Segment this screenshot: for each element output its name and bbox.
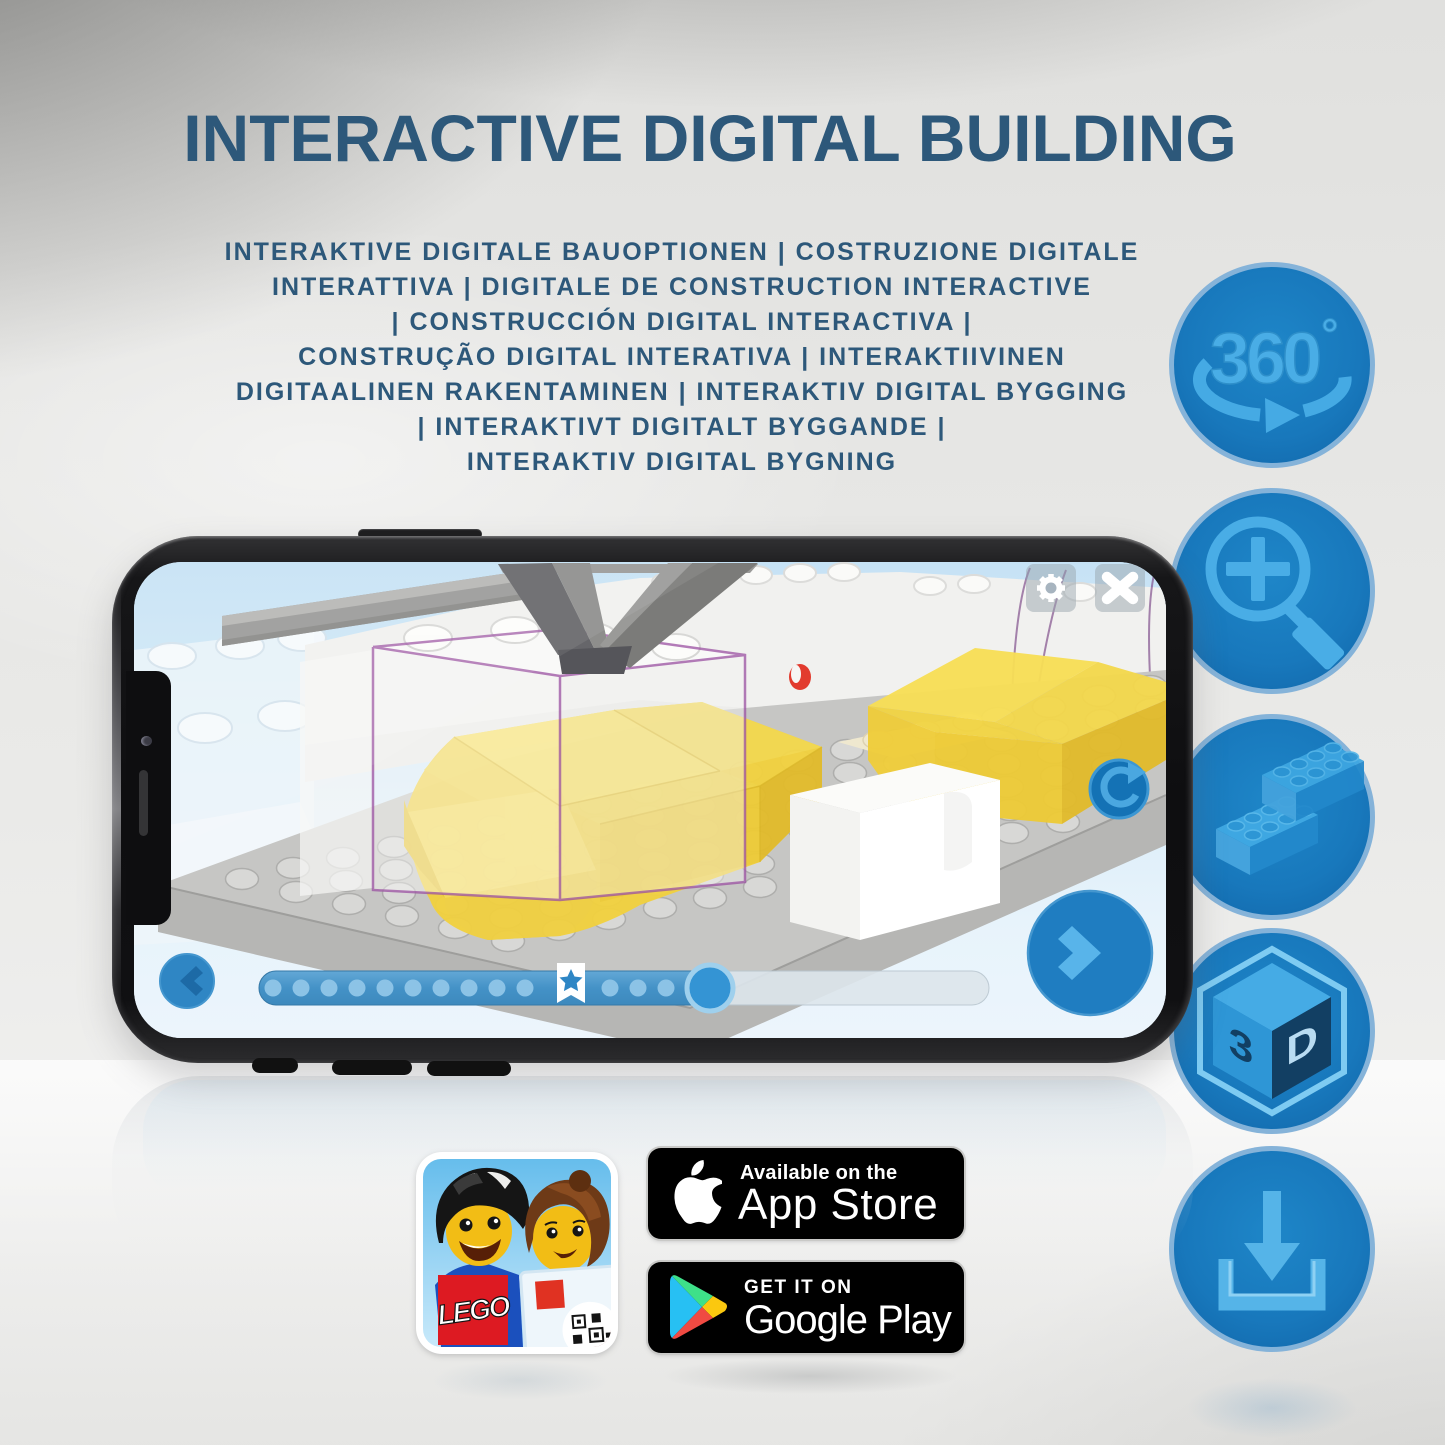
svg-text:360: 360	[1210, 319, 1320, 399]
svg-text:°: °	[1321, 310, 1339, 359]
